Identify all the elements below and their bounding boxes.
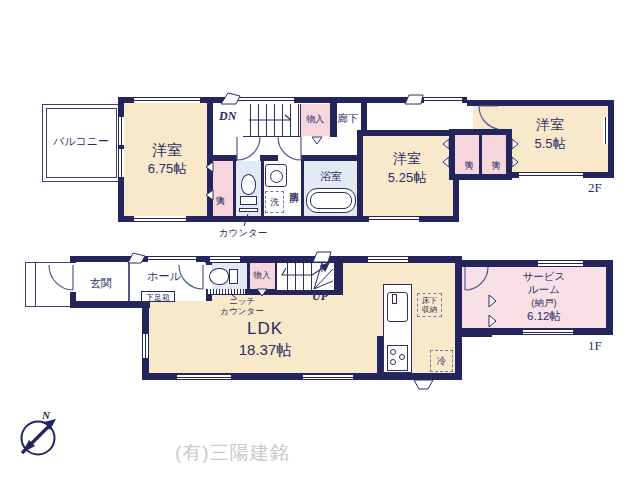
stairs-dn-label: DN: [219, 109, 236, 123]
entrance-label: 玄関: [79, 277, 123, 290]
laundry-label: 洗: [265, 197, 284, 208]
window: [210, 257, 240, 262]
hallway-label: 廊下: [331, 112, 365, 125]
porch-step-line: [35, 263, 36, 306]
service-room-line1: サービス: [523, 270, 566, 282]
stove-burner-2: [390, 359, 396, 365]
fridge-label: 冷: [437, 355, 447, 366]
stove-burner-3: [399, 354, 405, 360]
floor-storage-box: 床下 収納: [417, 293, 442, 317]
window: [538, 261, 583, 266]
floor2-label: 2F: [588, 180, 602, 196]
window: [424, 98, 462, 103]
floor-storage-line2: 収納: [422, 305, 437, 314]
service-room-line4: 6.12帖: [527, 310, 561, 322]
window: [523, 330, 573, 335]
toilet-icon-1f-bowl: [209, 268, 229, 285]
stairs-up-label: UP: [312, 289, 328, 303]
wall-hall-bottom: [70, 301, 150, 308]
room-525-name: 洋室: [365, 150, 449, 167]
window: [603, 117, 608, 144]
closet-hall-label: 物入: [249, 270, 275, 280]
closet-a-label: 物入: [462, 140, 473, 170]
floor1-label: 1F: [588, 338, 602, 354]
plan-symbols-overlay: N: [0, 0, 640, 480]
window: [519, 173, 583, 178]
window: [303, 375, 353, 380]
compass-n-label: N: [41, 409, 51, 421]
bathtub-inner-line: [310, 192, 352, 209]
ldk-name: LDK: [215, 319, 315, 339]
closet-stairs-label: 物入: [300, 114, 330, 125]
wall-sep-2: [261, 161, 264, 216]
hall-step-line: [128, 262, 130, 301]
fridge-box: 冷: [430, 350, 453, 372]
closet-b-label: 物入: [489, 140, 500, 170]
wall-kitchen-stub: [377, 336, 383, 373]
back-step-icon: [414, 380, 433, 389]
window: [119, 117, 124, 145]
niche-counter-line2: カウンター: [220, 306, 263, 316]
stairs-up-treads: [280, 263, 314, 290]
compass-icon: N: [22, 409, 57, 455]
room-675-size: 6.75帖: [127, 161, 207, 177]
window: [368, 257, 408, 262]
stove-burner-1: [390, 349, 396, 355]
shoe-box-label: 下足箱: [141, 293, 175, 303]
toilet-icon-2f-bowl: [241, 174, 256, 195]
window: [369, 217, 419, 222]
stairs-dn-treads: [243, 104, 301, 137]
service-room-label: サービス ルーム (納戸) 6.12帖: [482, 270, 606, 323]
toilet-counter-2f: [239, 208, 258, 212]
niche-counter-hatch: [207, 289, 245, 294]
sink-bowl-icon: [270, 170, 283, 183]
entrance-porch: [25, 262, 74, 307]
company-name: (有)三陽建銘: [175, 442, 290, 465]
window: [143, 334, 148, 358]
ldk-size: 18.37帖: [205, 341, 325, 359]
window: [232, 98, 294, 103]
niche-counter-line1: ニッチ: [229, 296, 255, 306]
room-525-size: 5.25帖: [365, 170, 449, 186]
window: [134, 98, 200, 103]
washroom-label: 洗面所: [287, 163, 300, 207]
window: [119, 149, 124, 177]
service-room-line2: ルーム: [528, 283, 560, 295]
bathtub-icon: [306, 188, 356, 213]
room-55-door-gap: [467, 106, 473, 130]
service-room-line3: (納戸): [531, 297, 556, 308]
bath-label: 浴室: [306, 170, 356, 183]
kitchen-faucet-icon: [392, 294, 397, 304]
niche-counter-label: ニッチ カウンター: [214, 297, 270, 317]
floor-plan-canvas: バルコニー 洋室 6.75帖 DN 物入 廊下 物入 洗面所 洗 浴室 カウンタ…: [0, 0, 640, 480]
room-675: [118, 97, 214, 222]
counter-label: カウンター: [217, 227, 269, 238]
balcony-label: バルコニー: [44, 135, 118, 148]
window: [177, 375, 231, 380]
window: [148, 257, 196, 262]
floor-storage-line1: 床下: [422, 296, 437, 305]
hall-label: ホール: [134, 270, 194, 283]
window: [134, 216, 186, 221]
kitchen-sink-icon: [387, 292, 408, 322]
toilet-icon-1f-tank: [229, 269, 238, 284]
toilet-icon-2f-tank: [240, 196, 257, 205]
closet-bedroom-label: 物入: [215, 168, 227, 210]
room-675-name: 洋室: [127, 141, 207, 159]
entrance-door-gap: [70, 263, 76, 292]
wall-stairs-right: [334, 256, 343, 290]
